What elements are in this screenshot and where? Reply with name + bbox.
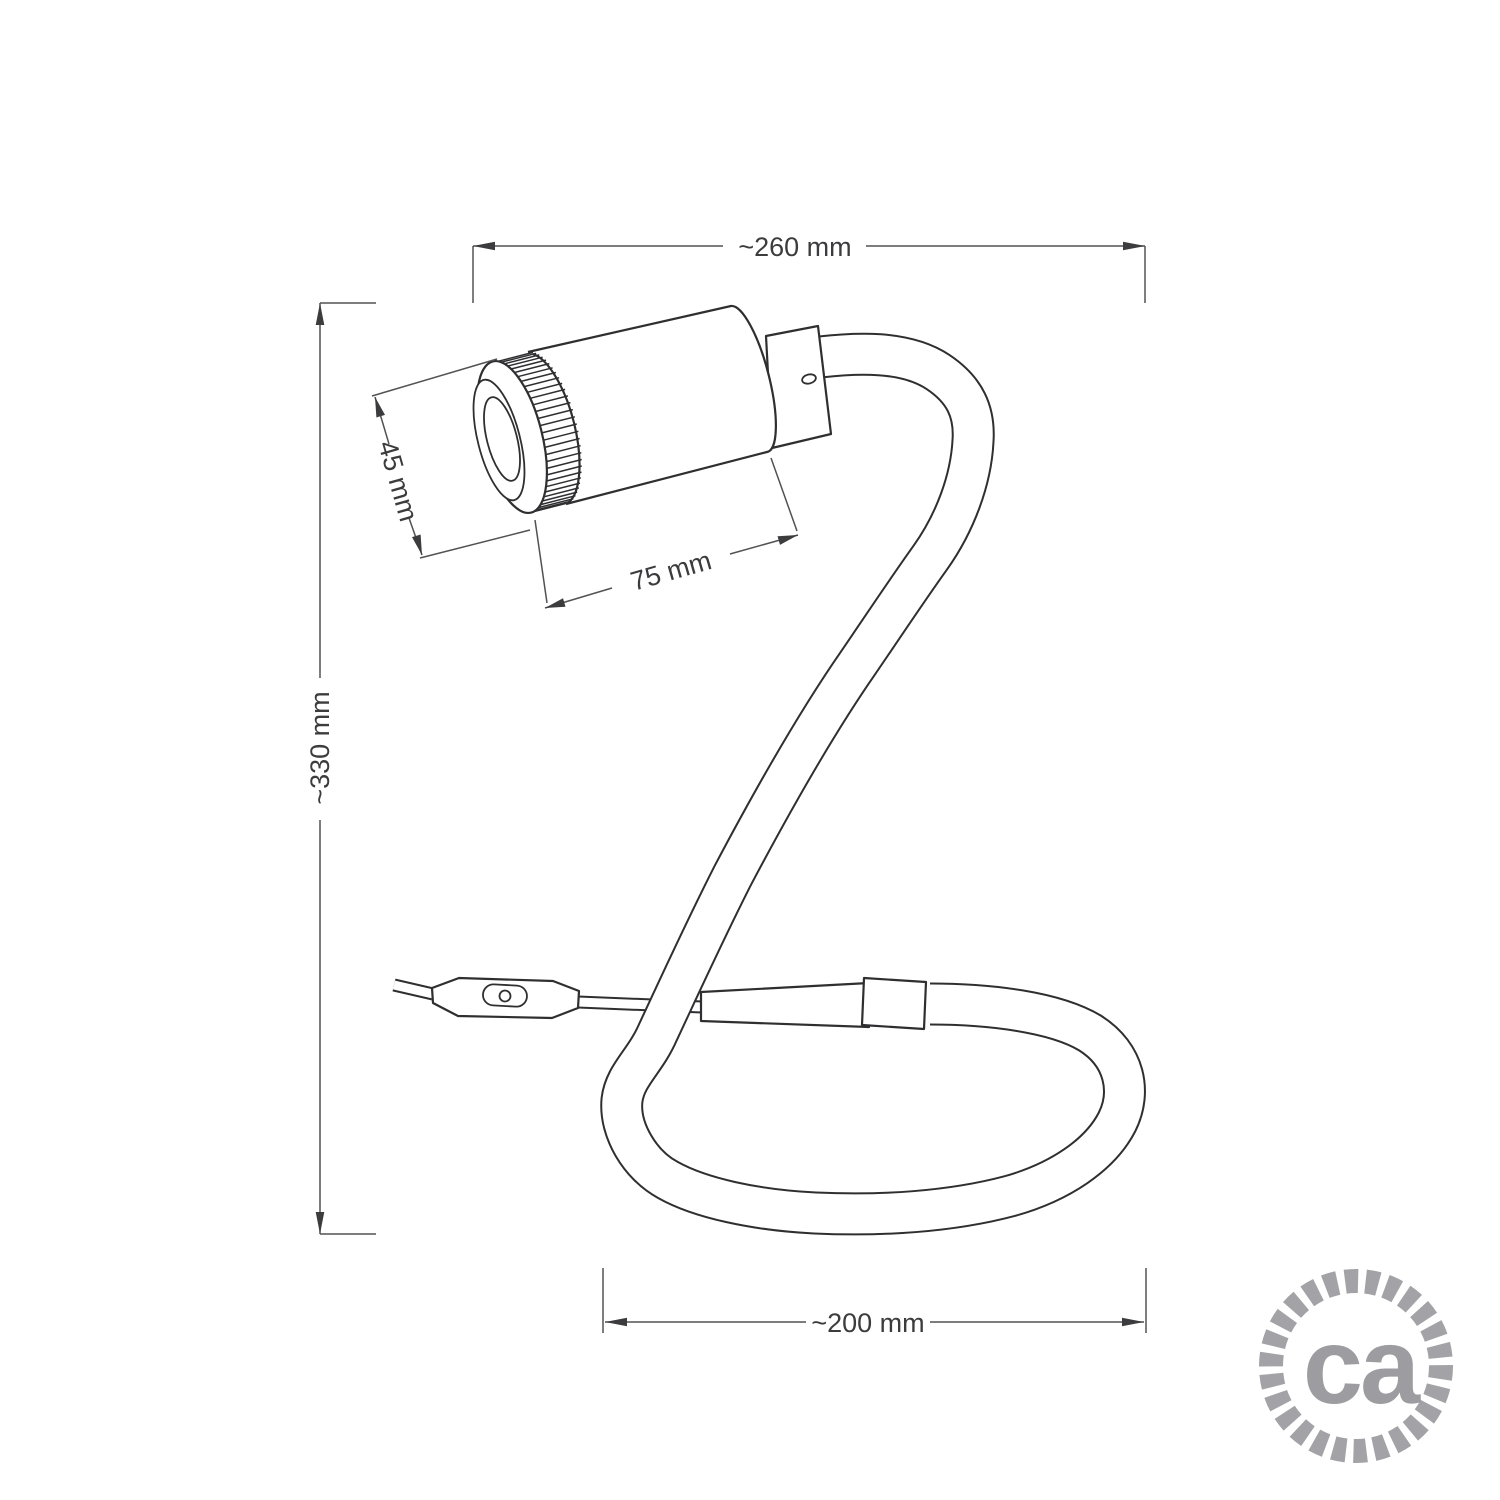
arrow-up-icon bbox=[316, 303, 325, 325]
arrow-diag-up-icon bbox=[375, 397, 385, 418]
arrow-diag-right-icon bbox=[778, 535, 799, 545]
arrow-diag-left-icon bbox=[545, 598, 566, 608]
switch-button bbox=[500, 991, 511, 1002]
arrow-right-icon bbox=[1122, 1318, 1144, 1327]
arrow-left-icon bbox=[605, 1318, 627, 1327]
strain-relief-collar bbox=[862, 978, 926, 1029]
arrow-diag-down-icon bbox=[412, 535, 422, 556]
dimension-head-length: 75 mm bbox=[535, 458, 798, 608]
brand-logo: ca bbox=[1271, 1281, 1441, 1451]
dim-label-head-length: 75 mm bbox=[627, 545, 715, 597]
dimension-drawing: ~260 mm ~330 mm 45 mm 75 mm bbox=[0, 0, 1500, 1500]
arrow-left-icon bbox=[473, 242, 495, 251]
dim-label-head-diameter: 45 mm bbox=[372, 437, 424, 525]
inline-switch bbox=[432, 978, 579, 1018]
dim-label-total-height: ~330 mm bbox=[305, 691, 335, 804]
logo-text: ca bbox=[1303, 1305, 1421, 1426]
head-body-fill bbox=[528, 306, 776, 504]
arrow-down-icon bbox=[316, 1212, 325, 1234]
dimension-total-width: ~260 mm bbox=[473, 232, 1145, 303]
dim-label-loop-width: ~200 mm bbox=[811, 1308, 924, 1338]
dim-label-total-width: ~260 mm bbox=[738, 232, 851, 262]
cable-ferrule bbox=[701, 983, 869, 1027]
arrow-right-icon bbox=[1123, 242, 1145, 251]
spotlight-head bbox=[463, 306, 776, 520]
gooseneck-tube bbox=[622, 354, 1125, 1214]
dimension-loop-width: ~200 mm bbox=[603, 1268, 1146, 1338]
dimension-total-height: ~330 mm bbox=[305, 303, 376, 1234]
